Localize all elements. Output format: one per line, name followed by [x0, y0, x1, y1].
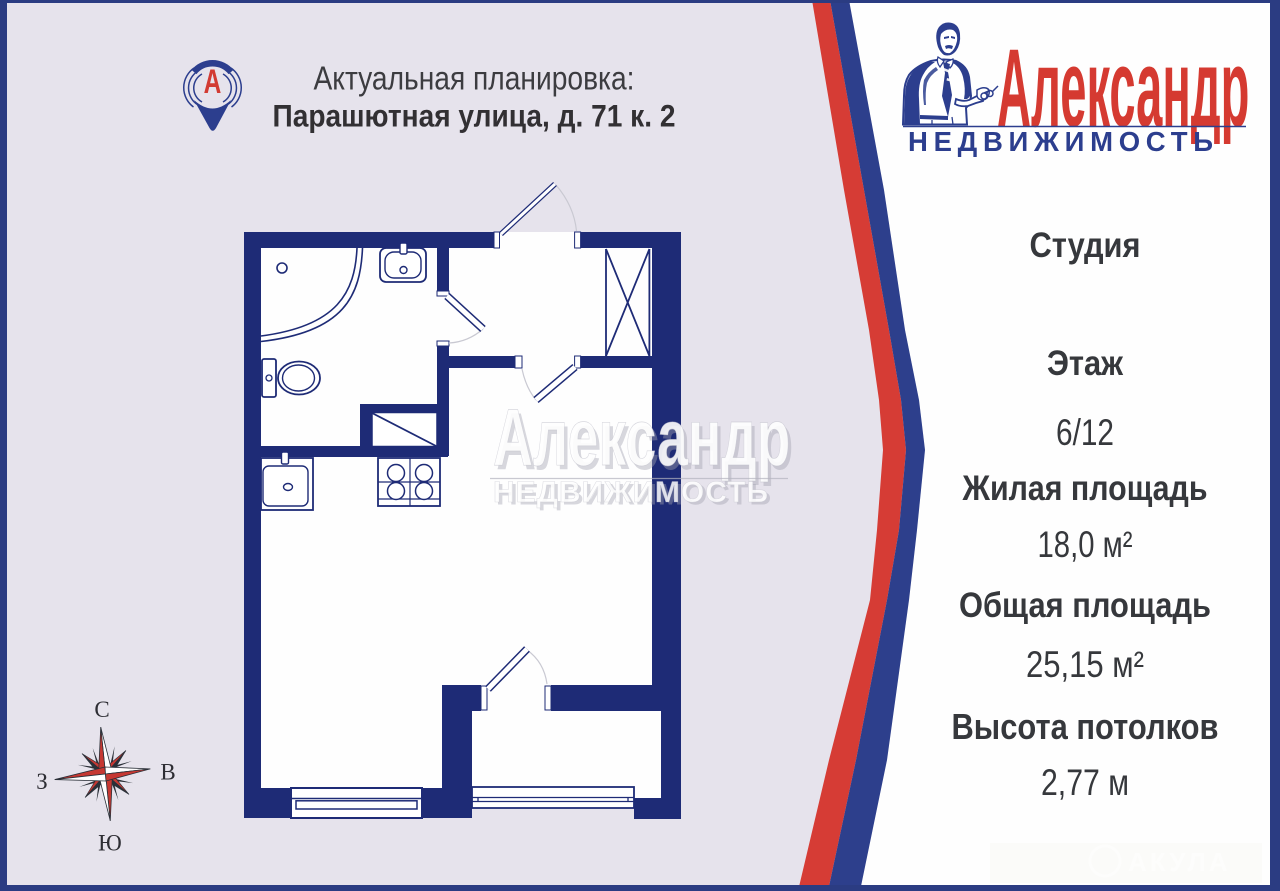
- svg-text:С: С: [94, 697, 109, 722]
- svg-text:Александр: Александр: [493, 391, 790, 482]
- svg-text:НЕДВИЖИМОСТЬ: НЕДВИЖИМОСТЬ: [493, 476, 768, 509]
- svg-text:Парашютная улица, д. 71 к. 2: Парашютная улица, д. 71 к. 2: [273, 98, 676, 134]
- svg-text:Студия: Студия: [1030, 226, 1141, 265]
- svg-text:25,15 м²: 25,15 м²: [1026, 644, 1144, 685]
- svg-text:18,0 м²: 18,0 м²: [1038, 524, 1133, 565]
- svg-text:Общая площадь: Общая площадь: [959, 586, 1211, 625]
- svg-text:АКУЛА: АКУЛА: [1128, 847, 1231, 877]
- svg-text:6/12: 6/12: [1056, 412, 1114, 453]
- svg-text:В: В: [160, 760, 175, 785]
- svg-text:2,77 м: 2,77 м: [1041, 762, 1129, 803]
- svg-text:Этаж: Этаж: [1047, 344, 1124, 383]
- svg-text:З: З: [36, 769, 48, 794]
- svg-text:Ю: Ю: [98, 831, 122, 856]
- svg-text:А: А: [204, 63, 222, 101]
- svg-text:Жилая площадь: Жилая площадь: [962, 469, 1208, 508]
- svg-text:Актуальная планировка:: Актуальная планировка:: [314, 60, 635, 97]
- svg-text:Высота потолков: Высота потолков: [952, 706, 1219, 747]
